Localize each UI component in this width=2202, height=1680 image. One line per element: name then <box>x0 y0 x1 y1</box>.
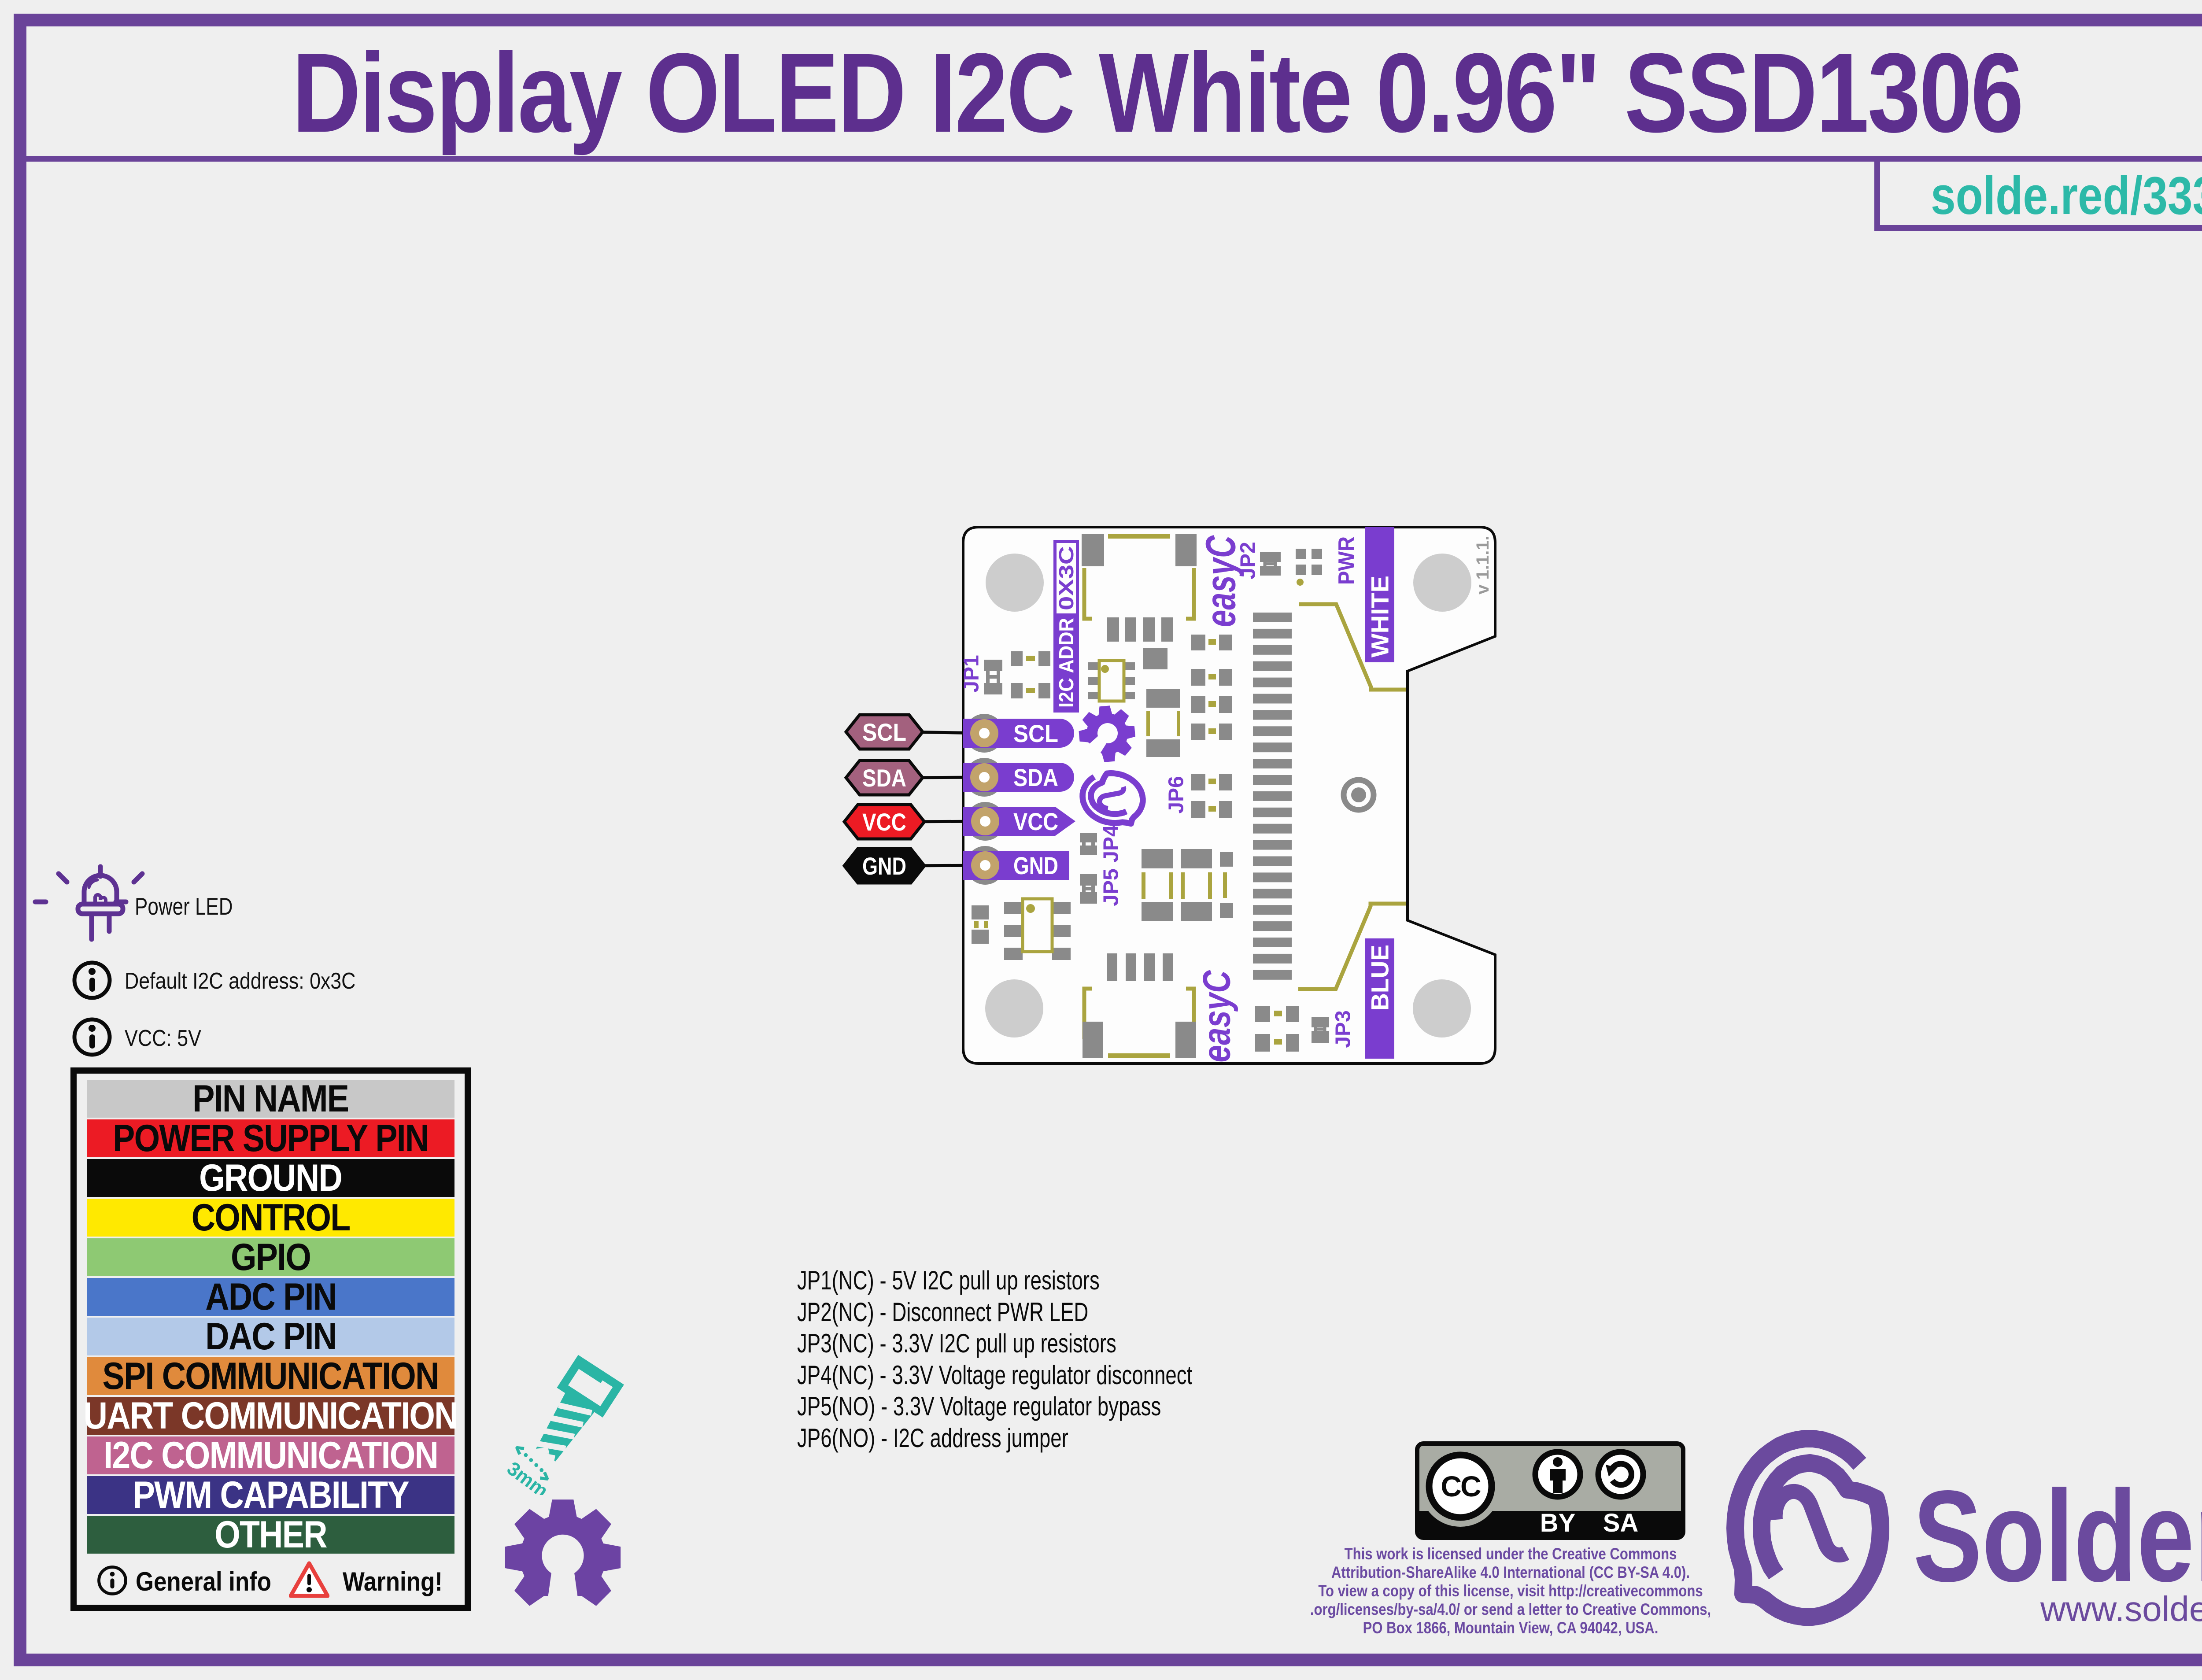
svg-text:BLUE: BLUE <box>1366 945 1394 1011</box>
svg-text:0X3C: 0X3C <box>1055 546 1078 610</box>
svg-text:JP1: JP1 <box>960 655 983 692</box>
svg-text:I2C ADDR: I2C ADDR <box>1055 618 1078 708</box>
svg-text:VCC: VCC <box>862 808 906 836</box>
svg-text:SDA: SDA <box>1013 764 1058 791</box>
svg-text:PWR: PWR <box>1334 536 1360 585</box>
svg-text:JP4: JP4 <box>1100 825 1123 863</box>
svg-text:SCL: SCL <box>1013 720 1058 747</box>
svg-text:SA: SA <box>1603 1509 1639 1537</box>
svg-text:VCC: VCC <box>1013 808 1058 835</box>
svg-text:JP6: JP6 <box>1165 776 1188 813</box>
svg-text:SDA: SDA <box>862 764 906 792</box>
svg-text:SCL: SCL <box>862 718 906 746</box>
svg-text:easyC: easyC <box>1195 970 1238 1062</box>
svg-text:CC: CC <box>1441 1470 1481 1503</box>
svg-text:GND: GND <box>862 852 906 880</box>
svg-text:WHITE: WHITE <box>1366 576 1394 657</box>
svg-text:JP3: JP3 <box>1332 1010 1355 1048</box>
svg-text:GND: GND <box>1013 852 1058 879</box>
svg-text:easyC: easyC <box>1197 535 1245 627</box>
svg-text:BY: BY <box>1540 1509 1576 1537</box>
svg-text:JP5: JP5 <box>1100 868 1123 906</box>
svg-text:v 1.1.1.: v 1.1.1. <box>1473 535 1493 594</box>
